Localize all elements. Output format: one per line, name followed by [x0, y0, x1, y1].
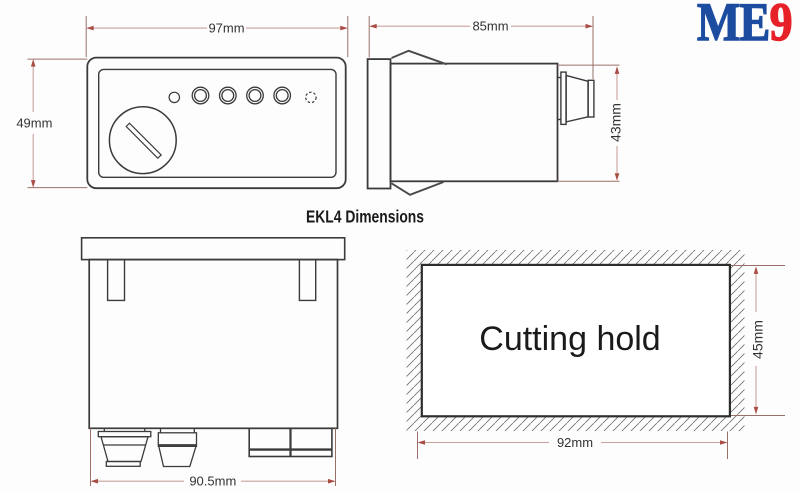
svg-text:92mm: 92mm — [557, 435, 593, 450]
svg-text:97mm: 97mm — [208, 21, 244, 36]
svg-text:90.5mm: 90.5mm — [189, 474, 236, 489]
svg-text:Cutting hold: Cutting hold — [479, 320, 660, 358]
svg-text:85mm: 85mm — [472, 19, 508, 34]
svg-text:45mm: 45mm — [750, 320, 766, 359]
svg-text:43mm: 43mm — [608, 103, 624, 142]
svg-text:49mm: 49mm — [16, 116, 52, 131]
svg-text:EKL4 Dimensions: EKL4 Dimensions — [306, 207, 424, 227]
svg-text:ME9: ME9 — [697, 0, 792, 52]
